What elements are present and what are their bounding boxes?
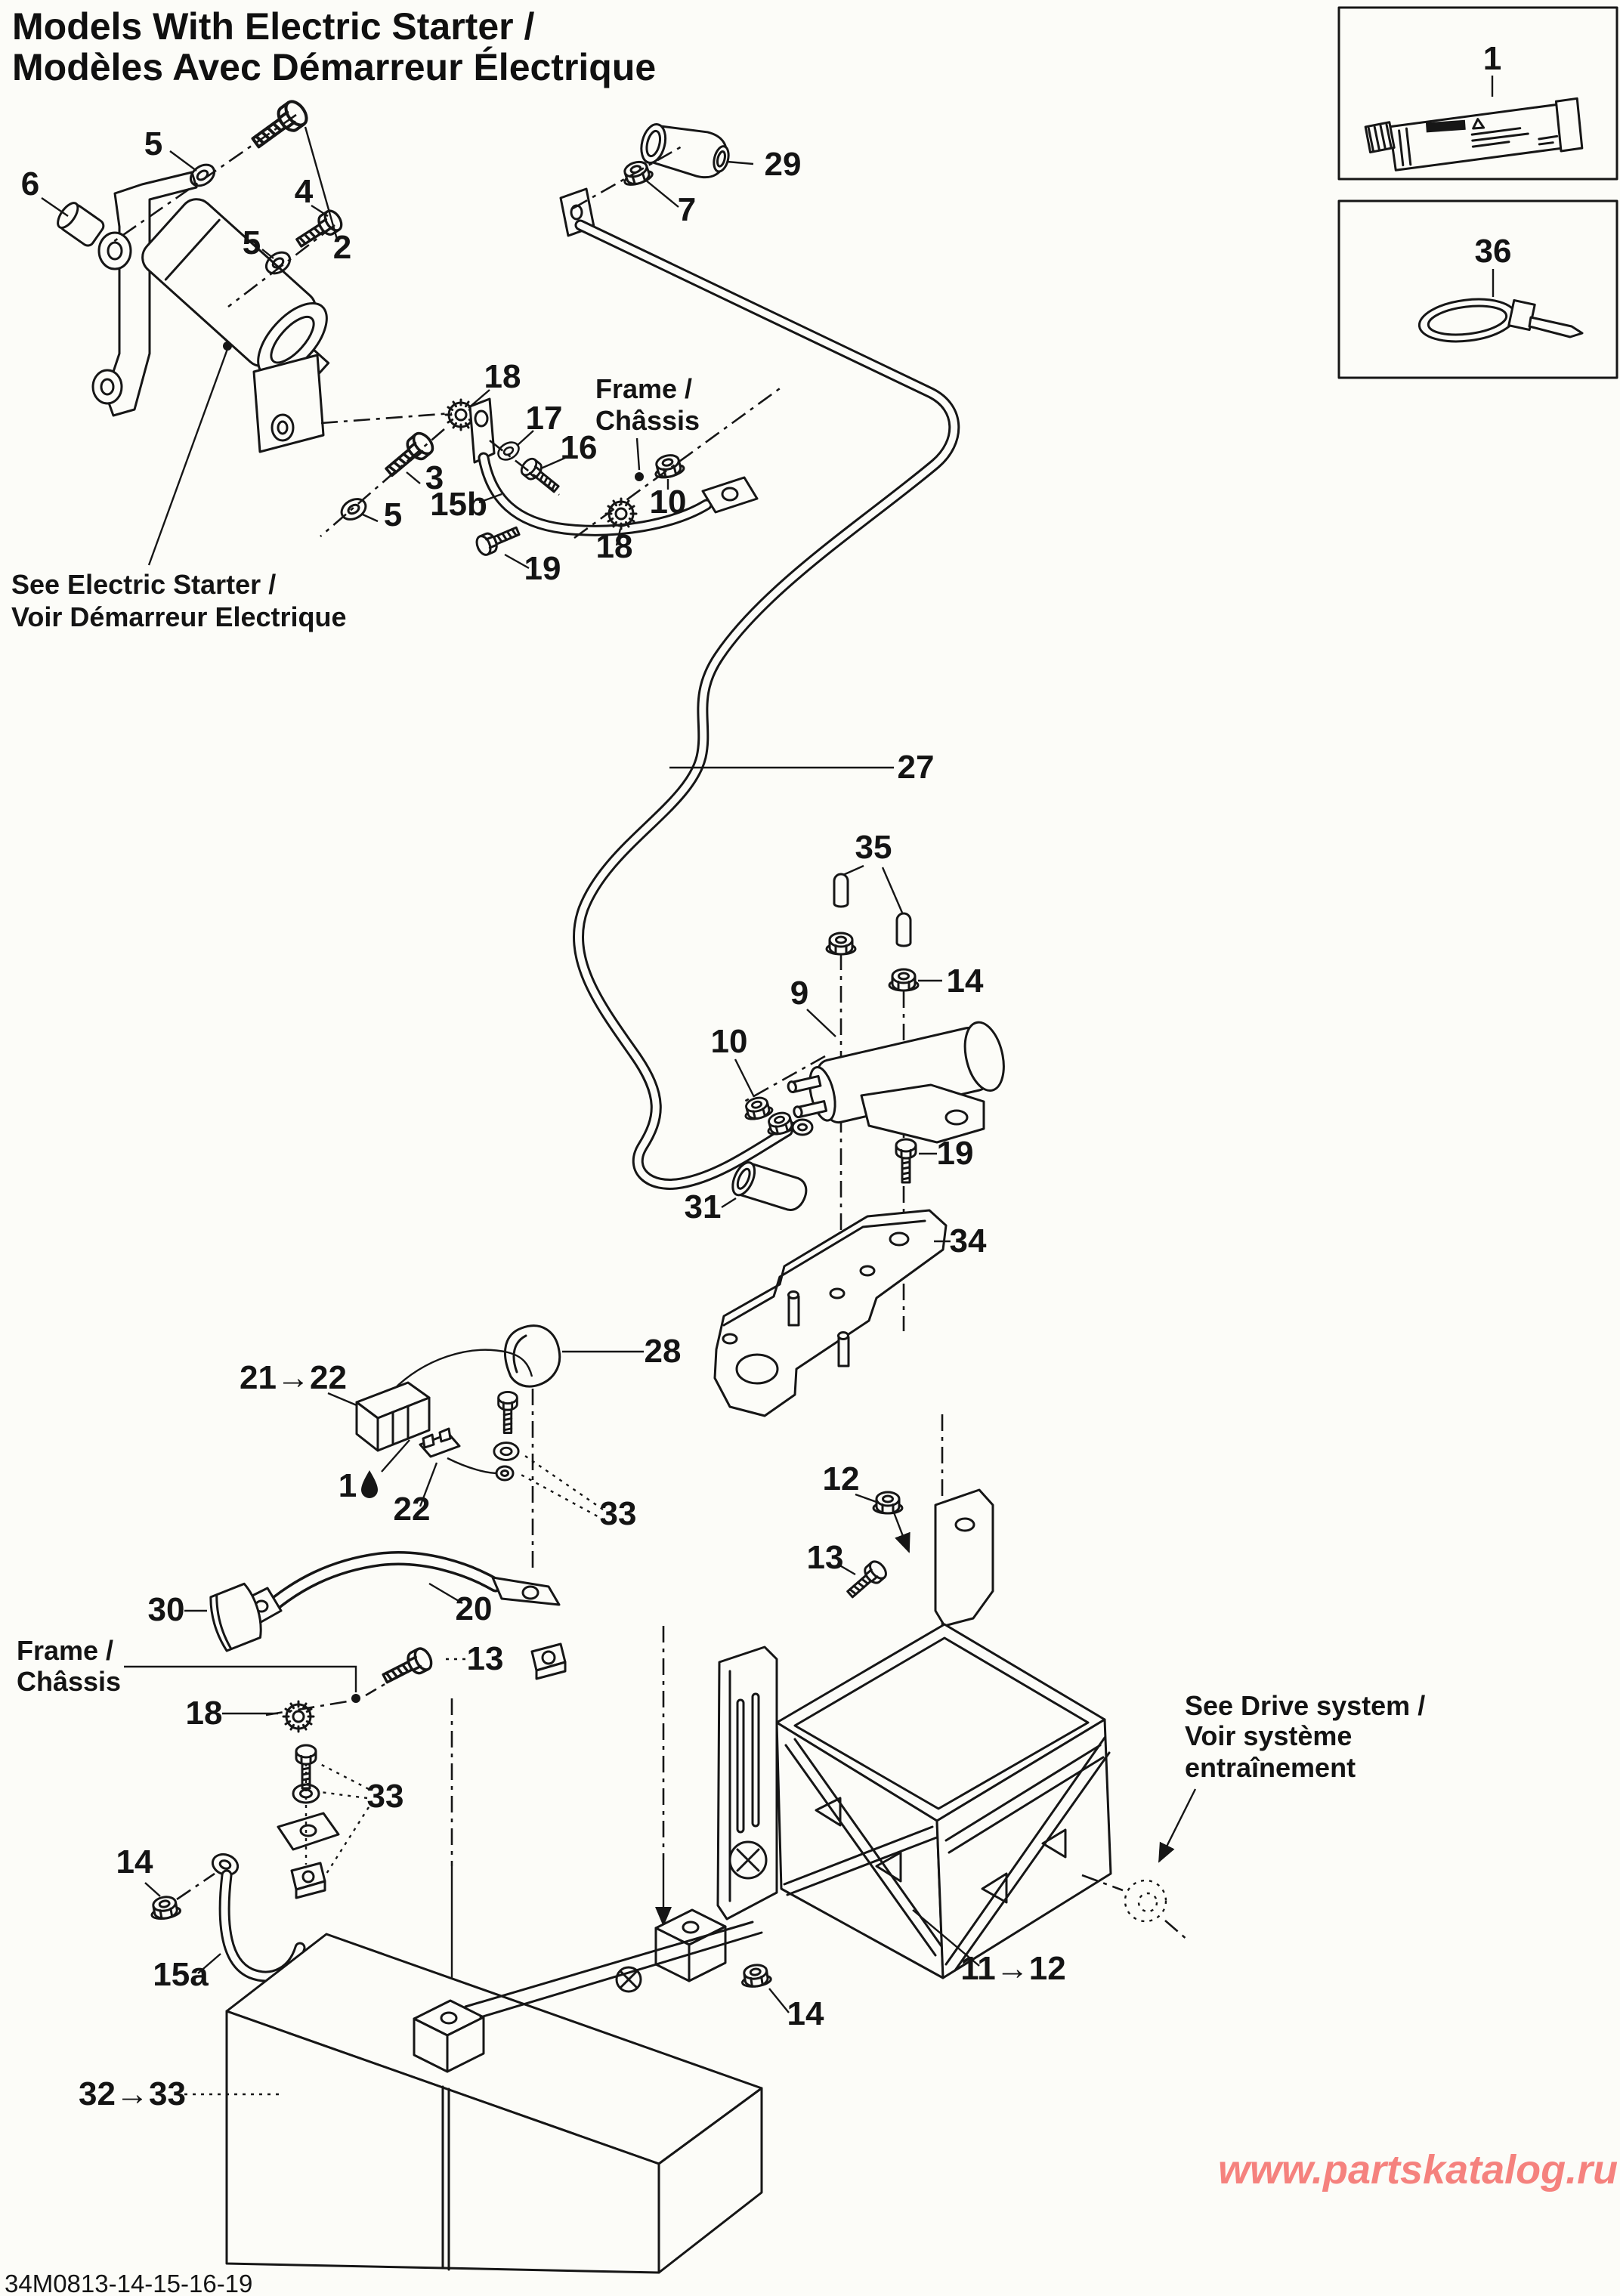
starter-solenoid-tab — [254, 355, 323, 452]
callout-33b: 33 — [367, 1778, 404, 1815]
tray-back-post — [935, 1490, 993, 1626]
note-drive-line2: Voir système — [1185, 1720, 1352, 1751]
protective-cap-35a — [834, 874, 848, 907]
callout-10a: 10 — [650, 484, 687, 521]
exploded-parts-diagram: Models With Electric Starter / Modèles A… — [0, 0, 1620, 2296]
note-drive-line3: entraînement — [1185, 1752, 1356, 1783]
bolt-19b — [896, 1139, 916, 1182]
watermark-link[interactable]: www.partskatalog.ru — [1218, 2147, 1618, 2192]
inset-box-sealant — [1339, 8, 1617, 179]
callout-18a: 18 — [484, 358, 521, 395]
nut-10b — [742, 1095, 774, 1121]
small-ring-terminal — [496, 1466, 513, 1480]
callout-18c: 18 — [186, 1695, 223, 1732]
inset-box-cable-tie — [1339, 201, 1617, 378]
note-drive-line1: See Drive system / — [1185, 1690, 1425, 1721]
callout-22: 22 — [394, 1491, 431, 1528]
nut-14c — [740, 1963, 772, 1988]
callout-4: 4 — [295, 173, 314, 210]
callout-9: 9 — [790, 975, 808, 1012]
fuse-22 — [420, 1429, 459, 1457]
battery — [227, 1910, 762, 2273]
bracket-33b — [278, 1813, 339, 1849]
nut-under-cap — [827, 933, 855, 954]
nut-12 — [873, 1492, 902, 1513]
callout-15a: 15a — [153, 1956, 209, 1993]
drawing-code: 34M0813-14-15-16-19 — [5, 2270, 252, 2296]
callout-18b: 18 — [596, 528, 633, 565]
bracket-34-plate — [715, 1210, 946, 1416]
callout-17: 17 — [526, 400, 563, 437]
fuse-holder-21-22 — [357, 1383, 429, 1451]
positive-cable-20-group — [207, 1559, 663, 2001]
battery-terminal-rear — [656, 1910, 725, 1981]
callout-35: 35 — [855, 829, 892, 866]
nut-10a — [652, 453, 685, 480]
nut-14a — [889, 969, 918, 990]
callout-34: 34 — [950, 1222, 987, 1259]
callout-19a: 19 — [524, 550, 561, 587]
battery-cable-27 — [579, 225, 954, 1184]
bolt-13b — [843, 1559, 889, 1602]
protective-cap-35b — [897, 913, 910, 946]
callout-inset-1: 1 — [1483, 40, 1501, 77]
washer-33a — [494, 1443, 518, 1460]
spacer-6 — [54, 199, 105, 248]
lubricant-droplet-icon — [361, 1470, 378, 1498]
fuse-holder-group — [357, 1326, 560, 1573]
stud-a — [789, 1296, 799, 1325]
callout-inset-36: 36 — [1475, 233, 1512, 270]
bolt-19a — [475, 522, 522, 557]
callout-20: 20 — [456, 1590, 493, 1627]
callout-19b: 19 — [937, 1135, 974, 1172]
callout-14a: 14 — [947, 963, 984, 1000]
callout-13a: 13 — [467, 1640, 504, 1677]
title-line-2: Modèles Avec Démarreur Électrique — [12, 46, 656, 88]
note-electric-starter-line2: Voir Démarreur Electrique — [11, 601, 347, 632]
callout-10b: 10 — [711, 1023, 748, 1060]
callout-5b: 5 — [243, 224, 261, 261]
note-frame-bottom-line2: Châssis — [17, 1666, 121, 1697]
frame-attach-dot-bottom — [351, 1694, 360, 1703]
callout-14b: 14 — [116, 1843, 153, 1880]
callout-28: 28 — [645, 1333, 682, 1370]
callout-29: 29 — [765, 146, 802, 183]
note-frame-bottom: Frame / Châssis — [17, 1635, 356, 1697]
starter-motor-assembly — [54, 172, 354, 452]
frame-attach-dot-top — [635, 472, 644, 481]
boot-29-group — [561, 117, 733, 236]
callout-1: 1 — [339, 1467, 357, 1504]
callout-6: 6 — [21, 165, 39, 202]
note-frame-top-line1: Frame / — [595, 373, 692, 404]
callout-21-22: 21→22 — [240, 1359, 347, 1396]
callout-5c: 5 — [384, 496, 402, 533]
lock-washer-18c — [283, 1701, 314, 1732]
callout-30: 30 — [148, 1591, 185, 1628]
note-drive-system: See Drive system / Voir système entraîne… — [1185, 1690, 1425, 1783]
bolt-33a — [499, 1392, 518, 1432]
callout-27: 27 — [898, 749, 935, 786]
washer-17 — [495, 439, 521, 463]
callout-15b: 15b — [430, 486, 487, 523]
callout-32-33: 32→33 — [79, 2075, 186, 2112]
note-frame-top: Frame / Châssis — [595, 373, 700, 470]
sealant-tube-drawing — [1365, 98, 1583, 172]
callout-14c: 14 — [787, 1995, 824, 2032]
callout-33a: 33 — [600, 1495, 637, 1532]
note-electric-starter-line1: See Electric Starter / — [11, 569, 276, 600]
callout-2: 2 — [333, 229, 351, 266]
ring-terminal — [793, 1120, 812, 1135]
bolt-13a — [380, 1646, 434, 1689]
tray-left-wall — [718, 1647, 777, 1919]
callout-5a: 5 — [144, 125, 162, 162]
battery-tray — [718, 1490, 1111, 1988]
title-line-1: Models With Electric Starter / — [12, 5, 534, 48]
callout-13b: 13 — [807, 1539, 844, 1576]
callout-12: 12 — [823, 1460, 860, 1497]
square-nut-cable20 — [532, 1644, 565, 1679]
cable-tie-drawing — [1417, 294, 1582, 346]
callout-16: 16 — [561, 429, 598, 466]
parts-diagram-page: Models With Electric Starter / Modèles A… — [0, 0, 1620, 2296]
callout-7: 7 — [678, 191, 696, 228]
callout-11-12: 11→12 — [960, 1950, 1065, 1987]
square-nut-33b — [292, 1863, 325, 1898]
bolt-2 — [248, 97, 311, 153]
stud-b — [839, 1337, 849, 1366]
cable20-right-lug — [493, 1578, 559, 1605]
note-frame-bottom-line1: Frame / — [17, 1635, 113, 1666]
note-frame-top-line2: Châssis — [595, 405, 700, 436]
callout-31: 31 — [685, 1188, 722, 1225]
page-title: Models With Electric Starter / Modèles A… — [12, 5, 656, 88]
